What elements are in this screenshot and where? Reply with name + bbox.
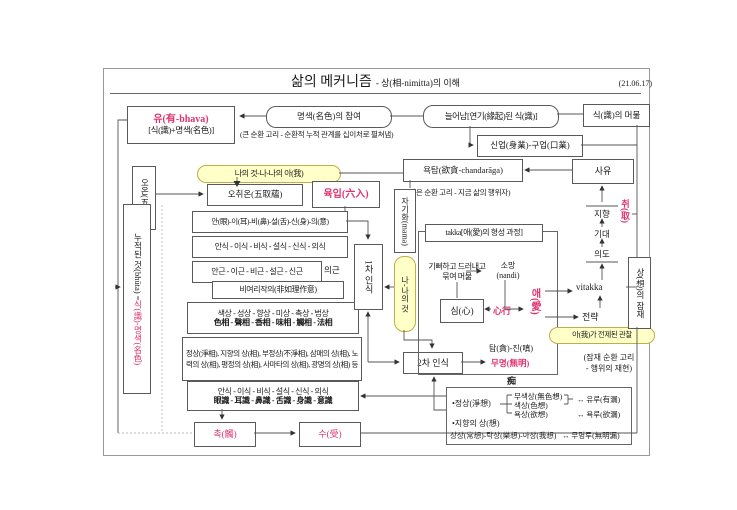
nimitta-kinds-box: 정상(淨相), 지향의 상(相), 부정상(不淨相), 삼매의 상(相), 노력…: [182, 337, 362, 381]
nandi-text: 소망 (nandi): [486, 261, 530, 282]
mind-root-label: 의근: [324, 264, 340, 276]
roots-row: 안근 - 이근 - 비근 - 설근 - 신근: [192, 261, 322, 283]
sanna-desire-label: 욕상(欲想): [514, 409, 548, 420]
lobha-dosa-label: 탐(貪)-진(嗔): [489, 343, 533, 354]
takka-title-box: takka[애(愛)의 형성 과정]: [425, 224, 543, 242]
asava-being-label: ↔ 유루(有漏): [577, 394, 620, 405]
vinnana-row-box: 안식 - 이식 - 비식 - 설식 - 신식 - 의식 眼識 - 耳識 - 鼻識…: [187, 381, 359, 411]
selfization-box: 자기화(mama): [394, 189, 416, 253]
title-sub: - 상(相-nimitta)의 이해: [376, 78, 460, 88]
vitakka-label: vitakka: [576, 282, 603, 292]
tanha-label: 애(愛): [527, 288, 542, 328]
asava-ignorance-label: ↔ 무명루(無明漏): [562, 430, 620, 441]
accumulated-prefix: 누적된 것(bhūta) =: [132, 233, 142, 301]
small-loop-note: (작은 순환 고리 - 지금 삶의 행위자): [407, 187, 577, 198]
direction-label: 지향: [588, 208, 616, 220]
chandaraga-box: 욕탐(欲貪-chandarāga): [403, 159, 523, 182]
five-upadana-box: 오취온(五取蘊): [207, 184, 303, 206]
expectation-label: 기대: [588, 228, 616, 240]
faculties-row: 안(眼)-이(耳)-비(鼻)-설(舌)-신(身)-의(意): [192, 211, 348, 233]
nimitta-korean: 색상 - 성상 - 향상 - 미상 - 촉상 - 법상: [218, 309, 329, 318]
nimitta-hanja: 色相 - 聲相 - 香相 - 味相 - 觸相 - 法相: [214, 318, 333, 327]
title-main: 삶의 메커니즘: [291, 75, 372, 90]
namarupa-join-node: 명색(名色)의 참여: [266, 106, 392, 128]
first-cognition-box: 1차 인식: [354, 244, 383, 310]
vinnana-korean: 안식 - 이식 - 비식 - 설식 - 신식 - 의식: [218, 387, 329, 396]
thinking-box: 사유: [572, 159, 634, 184]
consciousness-row: 안식 - 이식 - 비식 - 설식 - 신식 - 의식: [192, 236, 348, 258]
accumulated-highlight: 식(識)-명색(名色): [132, 300, 142, 365]
asava-desire-label: ↔ 욕루(欲漏): [577, 409, 620, 420]
sanna-triple-label: 상상(常想)-락상(樂想)-아상(我想): [450, 430, 556, 441]
me-mine-capsule: 나-나의 것: [394, 256, 416, 332]
sanna-pure-label: •정상(淨想): [452, 398, 491, 409]
nimitta-row-box: 색상 - 성상 - 향상 - 미상 - 촉상 - 법상 色相 - 聲相 - 香相…: [187, 302, 359, 334]
phassa-box: 촉(觸): [194, 422, 256, 447]
six-ayatana-box: 육입(六入): [312, 181, 380, 208]
upadana-label: 취(取): [619, 199, 632, 237]
date-label: (21.06.17): [596, 79, 652, 88]
diagram-canvas: 삶의 메커니즘 - 상(相-nimitta)의 이해 (21.06.17) 유(…: [0, 0, 737, 510]
title-rule: [110, 93, 641, 94]
avijja-label: 무명(無明): [491, 357, 529, 369]
citta-box: 심(心): [440, 299, 484, 323]
arising-node: 늘어남[연기(緣起)된 식(識)]: [423, 105, 559, 128]
accumulated-box: 누적된 것(bhūta) = 식(識)-명색(名色): [123, 204, 151, 394]
intention-label: 의도: [588, 248, 616, 260]
moha-label: 痴: [507, 374, 516, 387]
citta-sankhara-label: 心行: [493, 304, 511, 317]
delight-text: 기뻐하고 드러내고 묶여 머묾: [421, 262, 493, 283]
vedana-box: 수(受): [299, 422, 361, 447]
big-loop-note: (큰 순환 고리 - 순환적 누적 관계를 십이처로 펼쳐냄): [240, 129, 450, 140]
bhava-formula: [식(識)+명색(名色)]: [148, 126, 214, 136]
sanna-latency-box: 상(想)의 잠재: [628, 257, 651, 329]
bhava-box: 유(有-bhava) [식(識)+명색(名色)]: [127, 106, 235, 144]
kamma-box: 신업(身業)-구업(口業): [477, 135, 583, 157]
page-title: 삶의 메커니즘 - 상(相-nimitta)의 이해: [103, 71, 648, 91]
self-observation-capsule: 아(我)가 전제된 관찰: [549, 327, 655, 344]
vinnana-stay-box: 식(識)의 머묾: [583, 104, 650, 127]
vinnana-hanja: 眼識 - 耳識 - 鼻識 - 舌識 - 身識 - 意識: [214, 396, 333, 405]
latent-loop-note: (잠재 순환 고리 - 행위의 재현): [558, 352, 660, 374]
strategy-label: 전략: [582, 310, 599, 323]
sanna-directional-label: •지향의 상(想): [452, 418, 500, 429]
ayoniso-box: 비여리작의(非如理作意): [212, 281, 344, 299]
